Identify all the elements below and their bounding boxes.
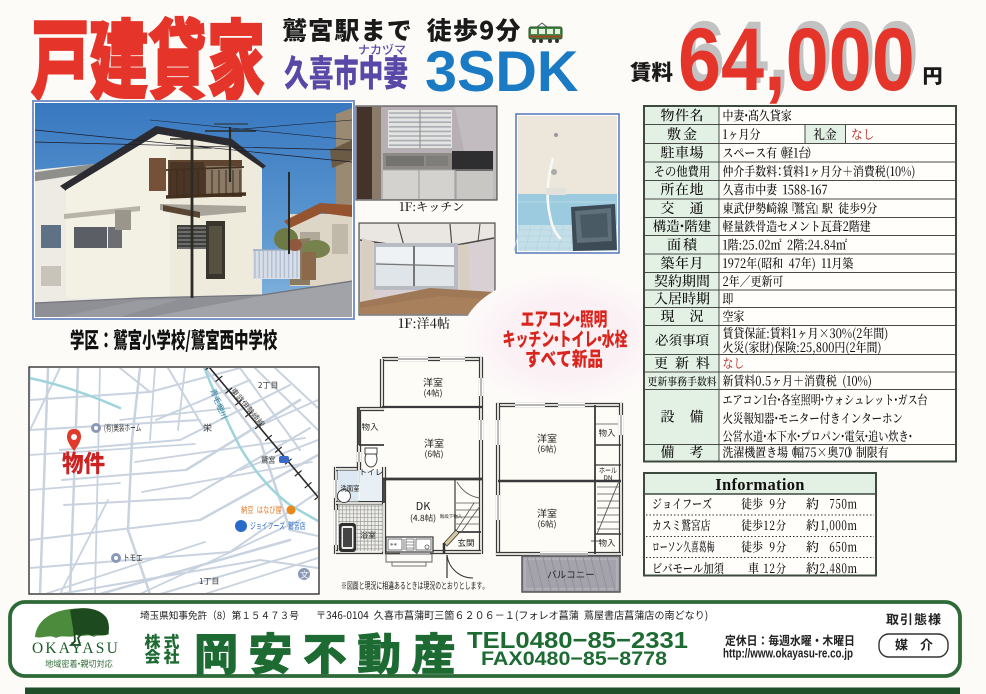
- svg-text:64,000: 64,000: [678, 9, 915, 109]
- svg-text:OKAYASU: OKAYASU: [32, 640, 120, 657]
- svg-text:**: **: [390, 542, 398, 550]
- svg-text:http://www.okayasu-re.co.jp: http://www.okayasu-re.co.jp: [723, 647, 853, 661]
- svg-text:Information: Information: [715, 475, 804, 494]
- svg-text:FAX0480−85−8778: FAX0480−85−8778: [481, 648, 667, 670]
- svg-text:3SDK: 3SDK: [425, 40, 578, 104]
